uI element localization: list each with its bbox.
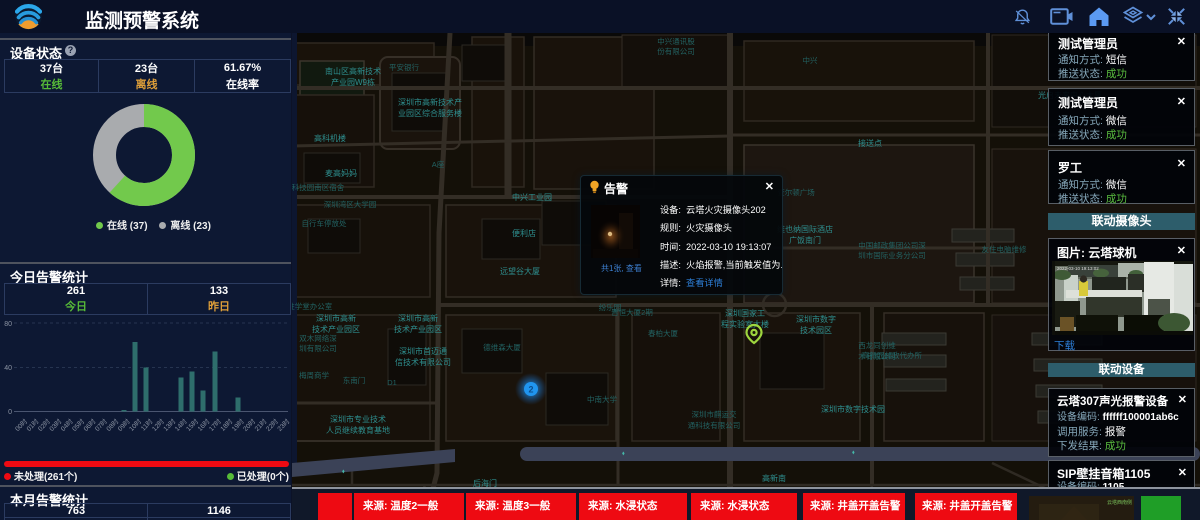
svg-text:平安银行: 平安银行 — [389, 62, 419, 72]
svg-text:80: 80 — [4, 321, 12, 328]
svg-text:深圳市数字技术园: 深圳市数字技术园 — [821, 404, 885, 414]
svg-text:深圳市专业技术: 深圳市专业技术 — [330, 414, 386, 424]
svg-text:西龙同创维: 西龙同创维 — [858, 340, 896, 350]
svg-text:麦高妈妈: 麦高妈妈 — [325, 168, 357, 178]
svg-text:南山区高新技术: 南山区高新技术 — [325, 66, 381, 76]
svg-text:产业园W9栋: 产业园W9栋 — [331, 77, 375, 87]
svg-text:A座: A座 — [432, 159, 445, 169]
svg-text:D1: D1 — [387, 378, 397, 387]
svg-text:圳市国际业务分公司: 圳市国际业务分公司 — [858, 250, 926, 260]
svg-text:信技术有限公司: 信技术有限公司 — [395, 357, 451, 367]
svg-text:人员继续教育基地: 人员继续教育基地 — [326, 425, 390, 435]
svg-text:⬧: ⬧ — [852, 450, 855, 456]
svg-text:深圳市高新技术产: 深圳市高新技术产 — [398, 97, 462, 107]
svg-text:中南大学: 中南大学 — [587, 394, 617, 404]
svg-text:深圳市高新: 深圳市高新 — [316, 313, 356, 323]
svg-text:云塔西南侧: 云塔西南侧 — [1107, 499, 1132, 506]
svg-text:接送点: 接送点 — [858, 138, 882, 148]
svg-text:高新南: 高新南 — [762, 473, 786, 483]
svg-text:⬧: ⬧ — [342, 469, 345, 475]
svg-text:深圳市数字: 深圳市数字 — [796, 314, 836, 324]
svg-text:深圳国家工: 深圳国家工 — [725, 308, 765, 318]
svg-text:高科机楼: 高科机楼 — [314, 133, 346, 143]
svg-text:中兴工业园: 中兴工业园 — [512, 192, 552, 202]
svg-text:⬧: ⬧ — [622, 451, 625, 457]
svg-text:程实验室大楼: 程实验室大楼 — [721, 319, 769, 329]
svg-text:昌柱学堂办公室: 昌柱学堂办公室 — [292, 301, 333, 311]
svg-text:远望谷大厦: 远望谷大厦 — [500, 266, 540, 276]
svg-text:中国邮政集团公司深: 中国邮政集团公司深 — [858, 240, 926, 250]
svg-text:技术园区: 技术园区 — [800, 325, 832, 335]
svg-text:通科技有限公司: 通科技有限公司 — [688, 420, 741, 430]
svg-text:圳有限公司: 圳有限公司 — [299, 343, 337, 353]
svg-text:自行车停放处: 自行车停放处 — [302, 218, 347, 228]
svg-text:中兴: 中兴 — [803, 55, 818, 65]
svg-text:东南门: 东南门 — [343, 375, 366, 385]
svg-text:科技园南区宿舍: 科技园南区宿舍 — [292, 182, 345, 192]
svg-text:深圳湾区大学园: 深圳湾区大学园 — [324, 199, 377, 209]
svg-text:深圳市高新: 深圳市高新 — [398, 313, 438, 323]
svg-text:0: 0 — [8, 409, 12, 416]
svg-text:业园区综合服务楼: 业园区综合服务楼 — [398, 108, 462, 118]
svg-text:深圳市麒运交: 深圳市麒运交 — [692, 409, 737, 419]
svg-text:2: 2 — [528, 385, 533, 395]
svg-text:友住电脑维修: 友住电脑维修 — [982, 244, 1027, 254]
svg-text:光启未来中心大厦: 光启未来中心大厦 — [1038, 90, 1102, 100]
svg-text:德维森大厦: 德维森大厦 — [483, 342, 521, 352]
svg-text:40: 40 — [4, 365, 12, 372]
svg-text:技术产业园区: 技术产业园区 — [312, 324, 360, 334]
svg-text:春柏大厦: 春柏大厦 — [648, 328, 678, 338]
svg-text:梅周商学: 梅周商学 — [299, 370, 329, 380]
svg-text:广饭南门: 广饭南门 — [789, 235, 821, 245]
svg-text:深圳市首迈通: 深圳市首迈通 — [399, 346, 447, 356]
svg-text:技术产业园区: 技术产业园区 — [394, 324, 442, 334]
svg-text:份有限公司: 份有限公司 — [657, 46, 695, 56]
svg-text:中兴通讯股: 中兴通讯股 — [657, 36, 695, 46]
svg-text:纷乐园: 纷乐园 — [599, 302, 622, 312]
svg-text:便利店: 便利店 — [512, 228, 536, 238]
svg-text:高新园邮政代办所: 高新园邮政代办所 — [862, 350, 922, 360]
svg-text:双木网络深: 双木网络深 — [299, 333, 337, 343]
svg-text:维也纳国际酒店: 维也纳国际酒店 — [777, 224, 833, 234]
